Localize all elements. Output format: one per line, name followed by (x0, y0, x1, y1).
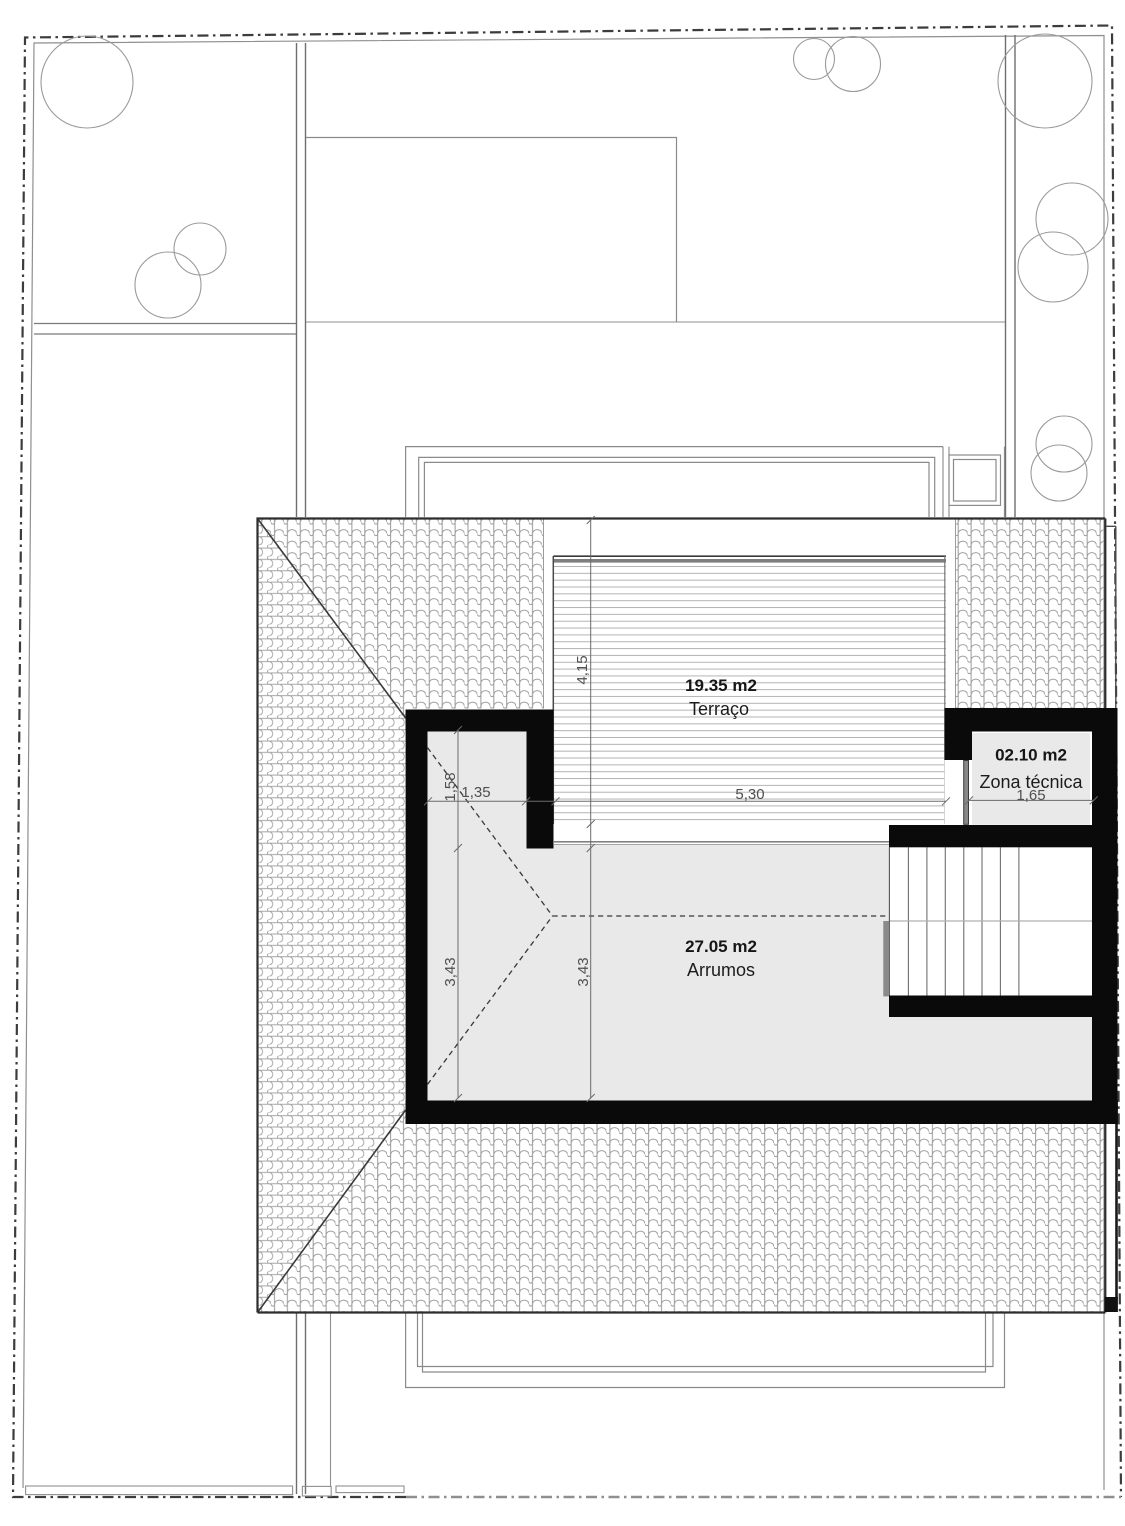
svg-text:Arrumos: Arrumos (687, 960, 755, 980)
svg-text:02.10 m2: 02.10 m2 (995, 746, 1067, 765)
svg-text:19.35 m2: 19.35 m2 (685, 676, 757, 695)
svg-text:1,58: 1,58 (442, 772, 459, 801)
svg-text:1,35: 1,35 (461, 784, 490, 801)
svg-text:4,15: 4,15 (574, 655, 591, 684)
svg-text:Terraço: Terraço (689, 699, 749, 719)
svg-text:5,30: 5,30 (735, 786, 764, 803)
svg-text:27.05 m2: 27.05 m2 (685, 937, 757, 956)
svg-text:3,43: 3,43 (442, 957, 459, 986)
svg-text:3,43: 3,43 (575, 957, 592, 986)
svg-text:Zona técnica: Zona técnica (979, 772, 1083, 792)
